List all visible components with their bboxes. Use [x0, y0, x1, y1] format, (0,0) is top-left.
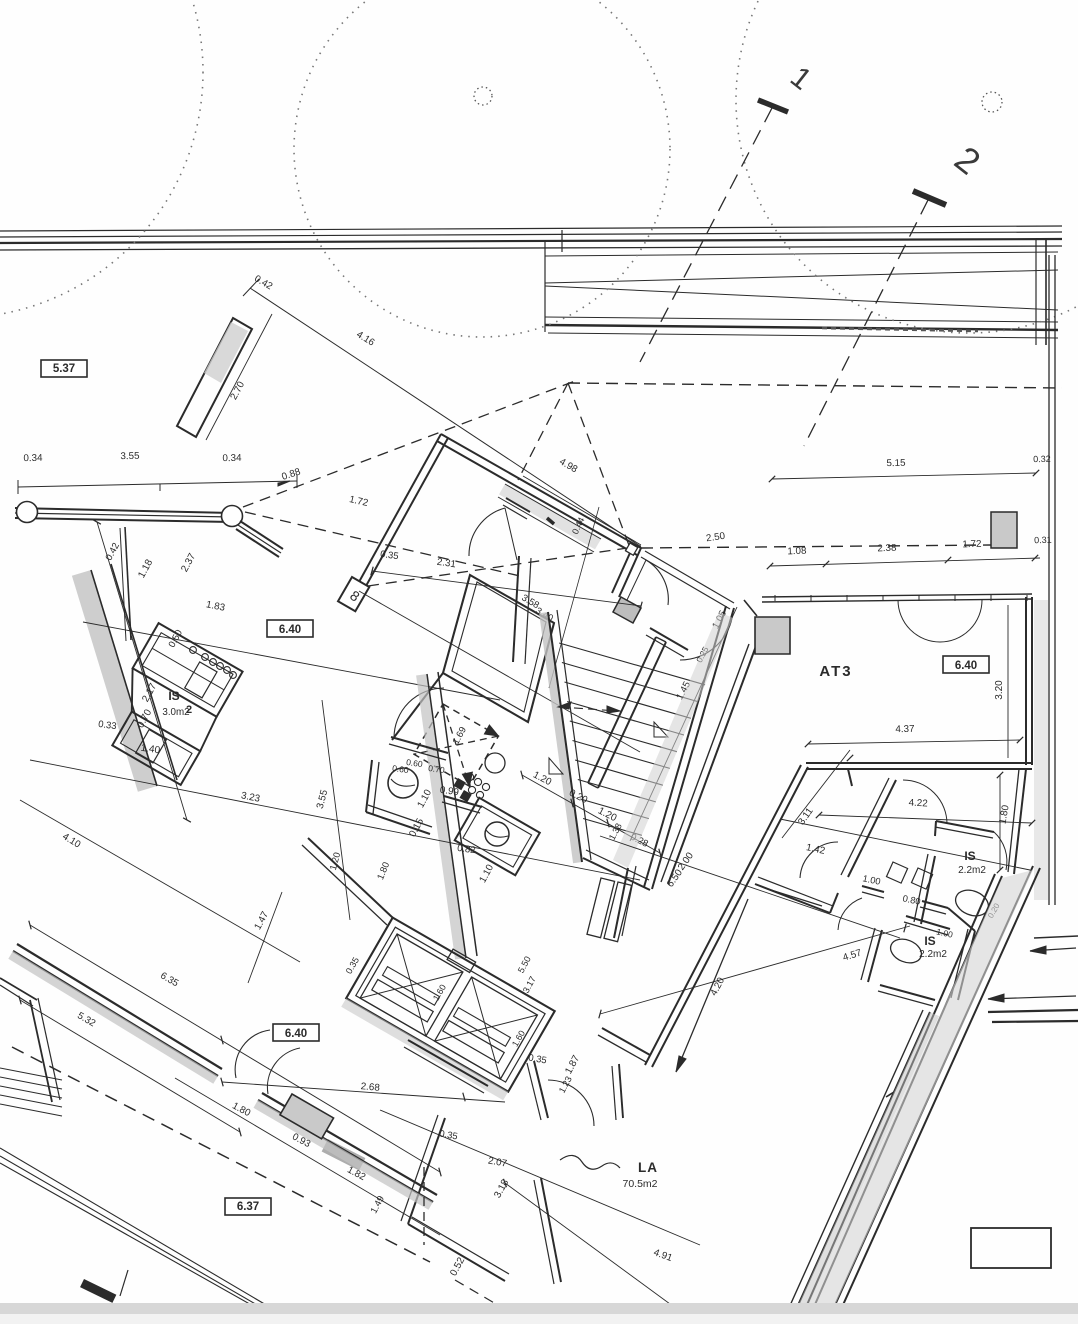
svg-text:6.40: 6.40 — [285, 1028, 307, 1040]
svg-text:6.40: 6.40 — [279, 624, 301, 636]
svg-text:1.08: 1.08 — [787, 546, 807, 558]
svg-text:IS: IS — [964, 849, 975, 863]
svg-text:6.37: 6.37 — [237, 1201, 259, 1213]
svg-text:2.2m2: 2.2m2 — [919, 949, 947, 960]
svg-text:2.38: 2.38 — [877, 543, 897, 555]
svg-text:IS: IS — [924, 934, 935, 948]
svg-text:3.20: 3.20 — [994, 680, 1005, 700]
svg-text:IS: IS — [168, 689, 179, 703]
svg-text:70.5m2: 70.5m2 — [622, 1178, 657, 1190]
svg-text:0.32: 0.32 — [1033, 454, 1051, 464]
svg-text:3.55: 3.55 — [120, 451, 140, 462]
svg-text:2.68: 2.68 — [360, 1081, 381, 1094]
svg-text:5.37: 5.37 — [53, 363, 75, 375]
svg-text:LA: LA — [638, 1160, 658, 1175]
svg-text:5.15: 5.15 — [886, 458, 906, 469]
svg-text:0.34: 0.34 — [222, 453, 242, 464]
svg-text:AT3: AT3 — [819, 663, 852, 680]
svg-text:6.40: 6.40 — [955, 660, 977, 672]
svg-text:1.72: 1.72 — [962, 539, 981, 551]
svg-text:0.34: 0.34 — [23, 453, 43, 464]
svg-text:2.2m2: 2.2m2 — [958, 865, 986, 876]
svg-text:4.22: 4.22 — [908, 798, 928, 810]
svg-text:4.37: 4.37 — [895, 724, 914, 735]
svg-text:2: 2 — [186, 704, 192, 716]
